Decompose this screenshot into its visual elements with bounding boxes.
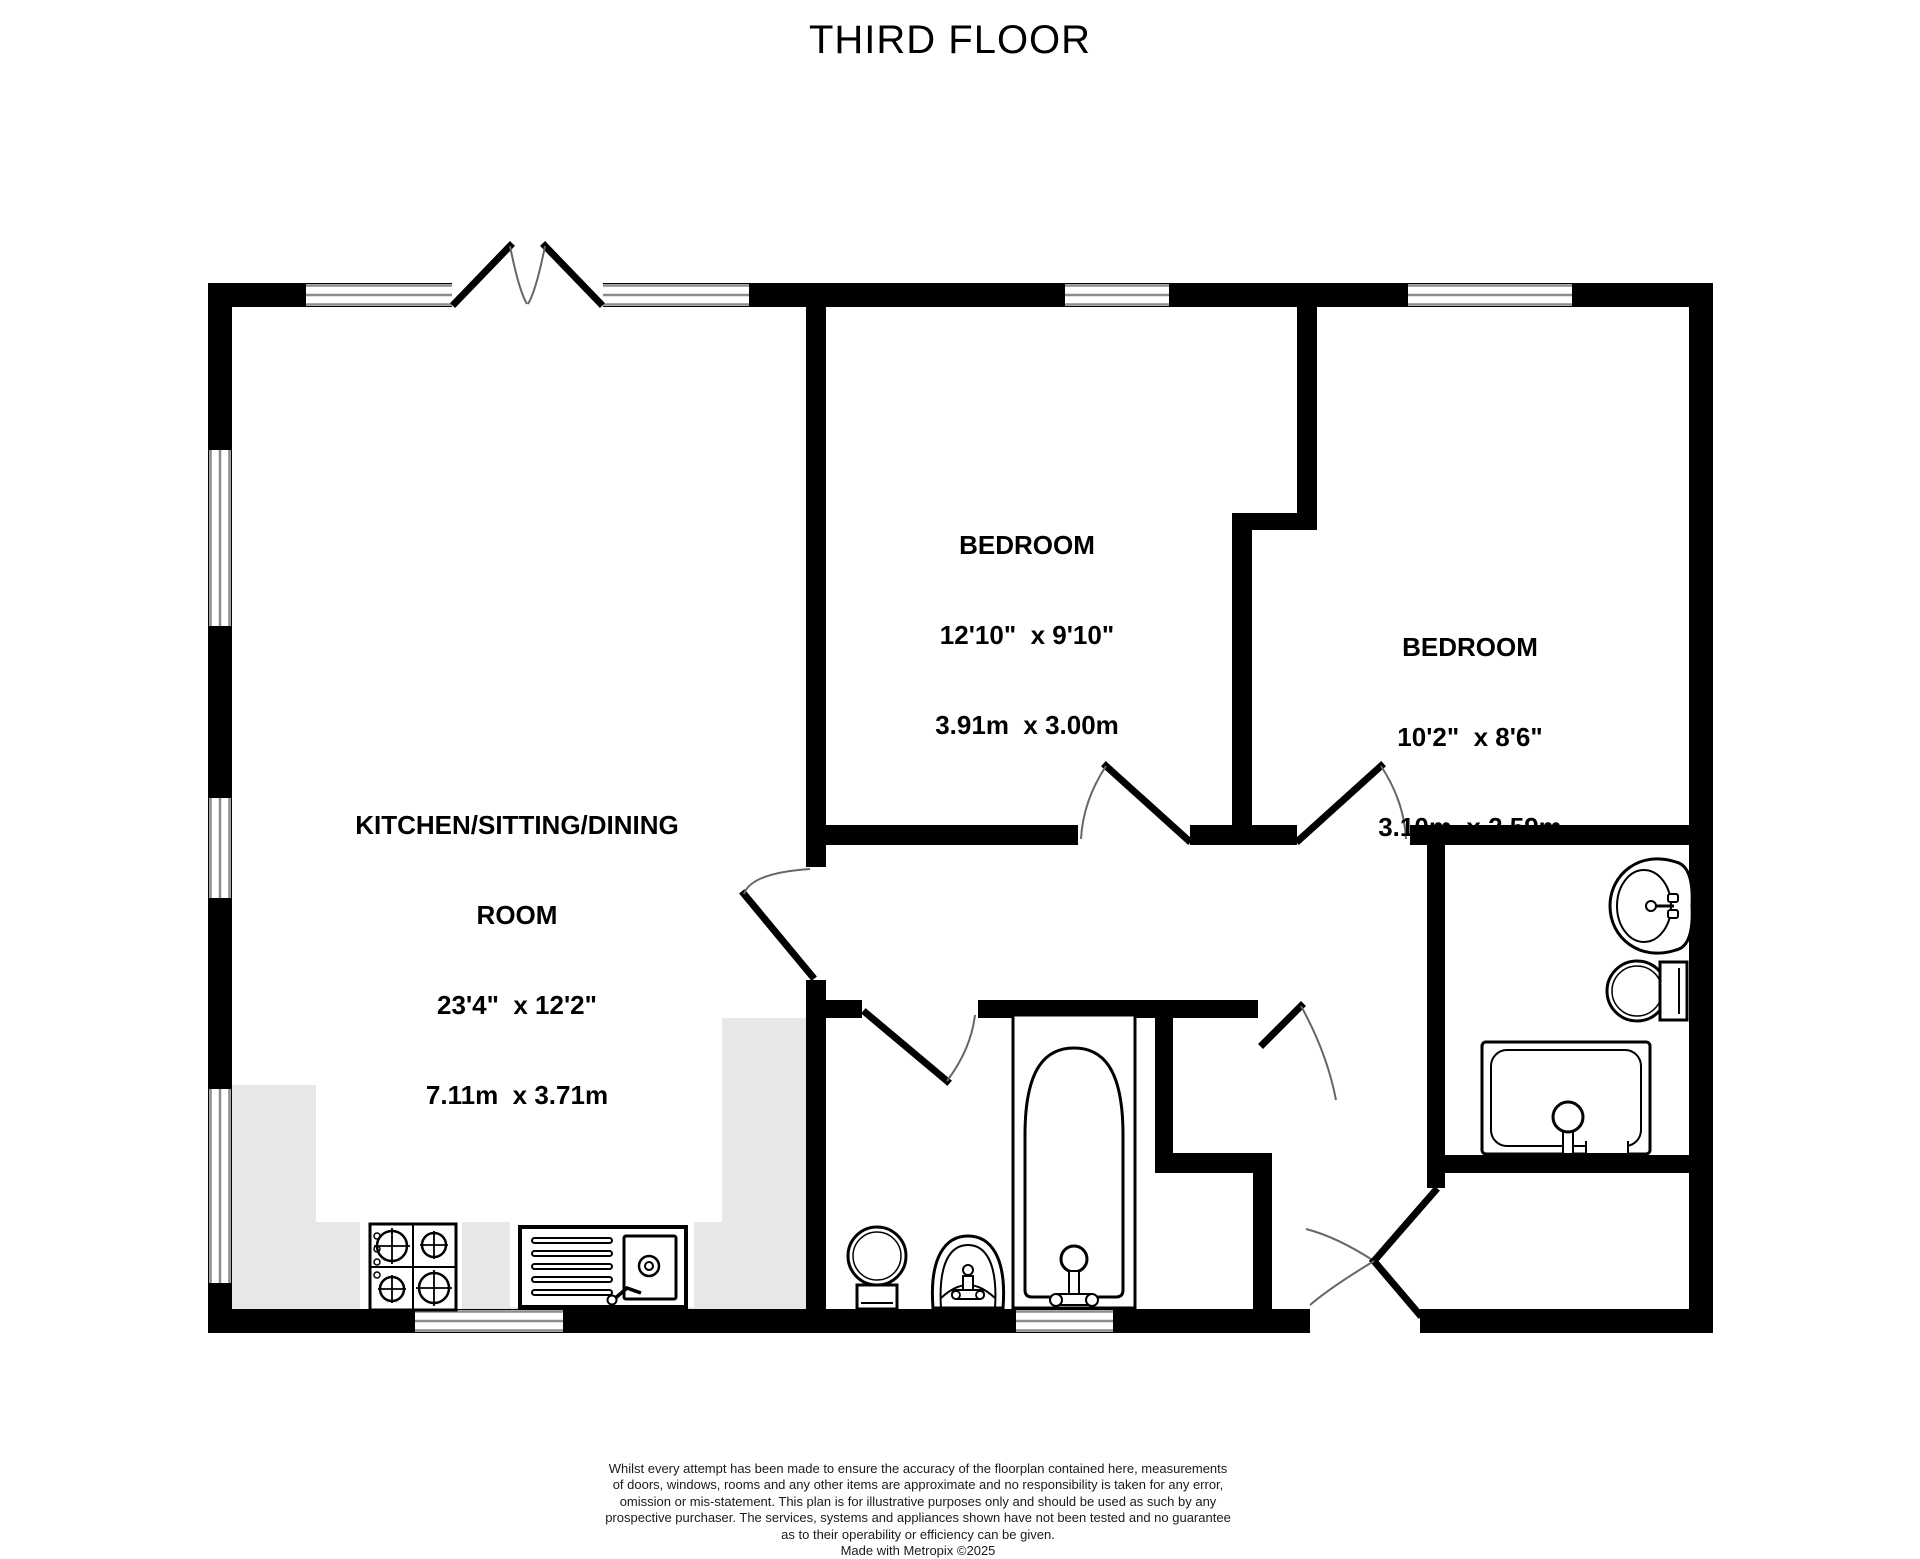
page-title: THIRD FLOOR bbox=[809, 18, 1091, 62]
pedestal-basin-fixture bbox=[932, 1236, 1003, 1308]
window bbox=[306, 284, 452, 306]
room-label-bedroom-1: BEDROOM 12'10" x 9'10" 3.91m x 3.00m bbox=[935, 470, 1119, 770]
door-kitchen bbox=[744, 869, 812, 976]
window bbox=[209, 798, 231, 898]
door-bedroom-1 bbox=[1081, 766, 1188, 840]
wall-right bbox=[1689, 283, 1713, 1333]
toilet-fixture bbox=[1607, 961, 1687, 1021]
wall-bedroom-divider-upper bbox=[1297, 307, 1317, 530]
room-size-metric: 7.11m x 3.71m bbox=[355, 1080, 679, 1110]
room-label-kitchen: KITCHEN/SITTING/DINING ROOM 23'4" x 12'2… bbox=[355, 750, 679, 1140]
window bbox=[415, 1310, 563, 1332]
bathtub-fixture bbox=[1013, 1015, 1135, 1308]
wall-showerroom-bottom bbox=[1427, 1155, 1689, 1173]
disclaimer-credit: Made with Metropix ©2025 bbox=[438, 1543, 1398, 1559]
disclaimer-line: omission or mis-statement. This plan is … bbox=[438, 1494, 1398, 1510]
wall-bedroom-divider-lower bbox=[1232, 513, 1252, 845]
room-name: ROOM bbox=[355, 900, 679, 930]
disclaimer: Whilst every attempt has been made to en… bbox=[438, 1461, 1398, 1559]
hob-fixture bbox=[370, 1224, 456, 1310]
room-size-imperial: 12'10" x 9'10" bbox=[935, 620, 1119, 650]
disclaimer-line: as to their operability or efficiency ca… bbox=[438, 1527, 1398, 1543]
window bbox=[209, 1089, 231, 1283]
washbasin-fixture bbox=[1610, 859, 1692, 953]
room-size-imperial: 10'2" x 8'6" bbox=[1378, 722, 1562, 752]
door-bathroom bbox=[866, 1013, 975, 1081]
disclaimer-line: prospective purchaser. The services, sys… bbox=[438, 1510, 1398, 1526]
room-label-bedroom-2: BEDROOM 10'2" x 8'6" 3.10m x 2.59m bbox=[1378, 572, 1562, 872]
wall-kitchen-divider-lower bbox=[806, 980, 826, 1309]
window bbox=[603, 284, 749, 306]
wall-kitchen-divider-upper bbox=[806, 307, 826, 867]
window bbox=[1408, 284, 1572, 306]
window bbox=[1016, 1310, 1113, 1332]
room-name: KITCHEN/SITTING/DINING bbox=[355, 810, 679, 840]
shower-enclosure-fixture bbox=[1482, 1042, 1650, 1154]
floorplan-drawing bbox=[0, 0, 1920, 1546]
wall-vestibule-left bbox=[1253, 1153, 1272, 1309]
wall-bath-jog bbox=[1155, 1153, 1253, 1173]
wall-showerroom-left bbox=[1427, 845, 1445, 1188]
disclaimer-line: of doors, windows, rooms and any other i… bbox=[438, 1477, 1398, 1493]
room-name: BEDROOM bbox=[1378, 632, 1562, 662]
wall-bathroom-top-1 bbox=[826, 1000, 862, 1018]
room-size-metric: 3.91m x 3.00m bbox=[935, 710, 1119, 740]
wall-hall-top-1 bbox=[826, 825, 1078, 845]
room-size-imperial: 23'4" x 12'2" bbox=[355, 990, 679, 1020]
door-entrance bbox=[1310, 1261, 1419, 1314]
window bbox=[1065, 284, 1169, 306]
door-shower-room bbox=[1306, 1191, 1435, 1261]
disclaimer-line: Whilst every attempt has been made to en… bbox=[438, 1461, 1398, 1477]
toilet-fixture bbox=[848, 1227, 906, 1309]
wall-bath-right bbox=[1155, 1018, 1173, 1153]
door-cupboard bbox=[1263, 1006, 1336, 1100]
kitchen-sink-fixture bbox=[520, 1227, 686, 1307]
room-size-metric: 3.10m x 2.59m bbox=[1378, 812, 1562, 842]
window bbox=[209, 450, 231, 626]
room-name: BEDROOM bbox=[935, 530, 1119, 560]
